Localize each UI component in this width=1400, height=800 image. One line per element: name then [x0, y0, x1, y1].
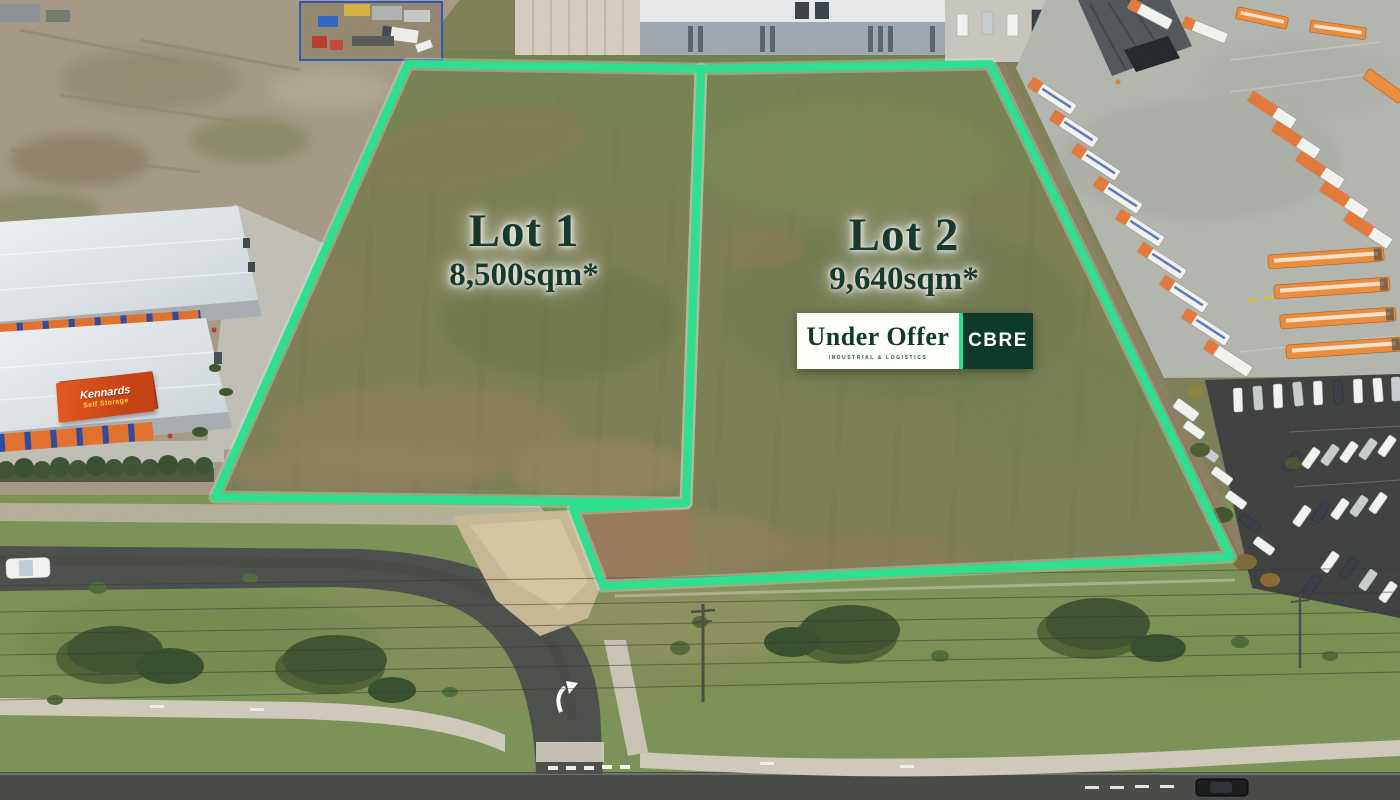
aerial-photo-art [0, 0, 1400, 800]
aerial-site-photo: Lot 1 8,500sqm* Lot 2 9,640sqm* Under Of… [0, 0, 1400, 800]
badge-division-text: INDUSTRIAL & LOGISTICS [829, 355, 928, 361]
lot1-area: 8,500sqm* [449, 258, 598, 292]
lot2-area: 9,640sqm* [829, 262, 978, 296]
photo-grain [0, 0, 1400, 800]
lot1-title: Lot 1 [449, 207, 598, 256]
lot2-label: Lot 2 9,640sqm* [829, 211, 978, 296]
under-offer-text: Under Offer [807, 322, 950, 352]
lot2-title: Lot 2 [829, 211, 978, 260]
cbre-logo: CBRE [963, 313, 1033, 369]
under-offer-badge: Under Offer INDUSTRIAL & LOGISTICS CBRE [797, 313, 1033, 369]
lot1-label: Lot 1 8,500sqm* [449, 207, 598, 292]
under-offer-panel: Under Offer INDUSTRIAL & LOGISTICS [797, 313, 959, 369]
